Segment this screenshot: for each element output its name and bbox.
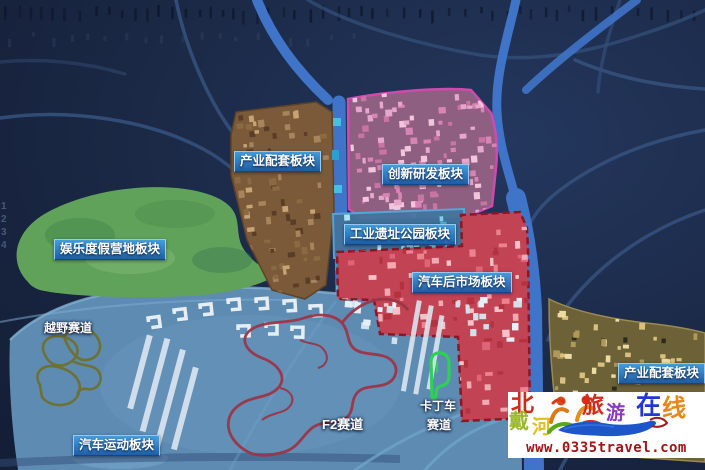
watermark: 北 戴 河 旅 游 在 线 www.0335travel.com (508, 392, 705, 458)
track-label-offroad: 越野赛道 (44, 319, 92, 336)
brand-char-zai: 在 (636, 393, 661, 418)
edge-marks: 1 2 3 4 (1, 200, 7, 252)
zone-label-industrial-heritage-park: 工业遗址公园板块 (344, 224, 456, 245)
zone-label-industry-support-se: 产业配套板块 (618, 363, 705, 384)
zone-label-auto-aftermarket: 汽车后市场板块 (412, 272, 512, 293)
wave-icon (554, 416, 674, 438)
brand-char-lv: 旅 (582, 396, 604, 418)
zone-innovation-shape (348, 89, 499, 218)
zone-label-innovation-rd: 创新研发板块 (382, 164, 469, 185)
watermark-url: www.0335travel.com (508, 440, 705, 456)
track-label-f2: F2赛道 (322, 414, 363, 433)
zone-label-leisure-resort-camp: 娱乐度假营地板块 (54, 239, 166, 260)
planning-map: 1 2 3 4 产业配套板块 创新研发板块 娱乐度假营地板块 工业遗址公园板块 … (0, 0, 705, 470)
zone-label-industry-support-nw: 产业配套板块 (234, 151, 321, 172)
brand-char-dai: 戴 (509, 411, 529, 431)
track-label-karting-line2: 赛道 (427, 416, 451, 433)
track-label-karting-line1: 卡丁车 (420, 397, 456, 414)
zone-label-auto-sports: 汽车运动板块 (73, 435, 160, 456)
